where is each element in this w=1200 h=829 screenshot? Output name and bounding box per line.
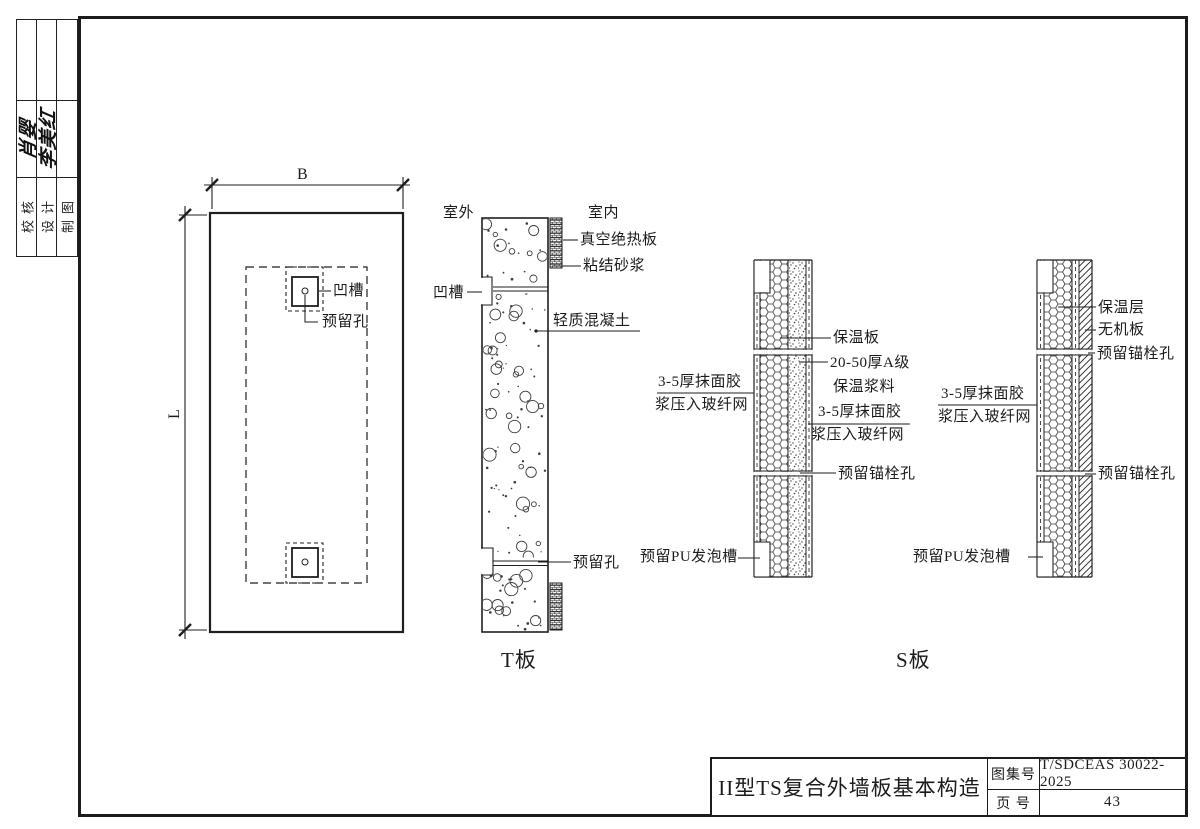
outdoor-label: 室外 <box>443 205 474 222</box>
atlas-no-label: 图集号 <box>988 759 1039 790</box>
insulation-slurry-label-line1: 20-50厚A级 <box>830 355 910 372</box>
right-render-label-line1: 3-5厚抹面胶 <box>941 386 1025 403</box>
left-pu-groove-label: 预留PU发泡槽 <box>640 549 738 566</box>
dim-width-label: B <box>297 166 308 184</box>
right-anchor-hole-top-label: 预留锚栓孔 <box>1097 346 1175 363</box>
vacuum-insulation-panel-label: 真空绝热板 <box>580 232 658 249</box>
s-panel-caption: S板 <box>896 644 931 674</box>
drawing-sheet: 肖婴 李美红 校核 设计 制图 <box>0 0 1200 829</box>
left-anchor-hole-label: 预留锚栓孔 <box>838 466 916 483</box>
t-panel-caption: T板 <box>501 644 537 674</box>
sheet-title: II型TS复合外墙板基本构造 <box>712 759 987 815</box>
outer-render-label-line1: 3-5厚抹面胶 <box>658 374 742 391</box>
right-render-label-line2: 浆压入玻纤网 <box>938 409 1031 426</box>
inner-render-label-line1: 3-5厚抹面胶 <box>818 404 902 421</box>
insulation-board-label: 保温板 <box>833 330 880 347</box>
inner-render-label-line2: 浆压入玻纤网 <box>811 427 904 444</box>
plan-reserved-hole-label: 预留孔 <box>322 314 369 331</box>
page-no-label: 页 号 <box>988 790 1039 815</box>
indoor-label: 室内 <box>588 205 619 222</box>
lightweight-concrete-label: 轻质混凝土 <box>553 313 631 330</box>
page-no-value: 43 <box>1040 790 1185 815</box>
outer-render-label-line2: 浆压入玻纤网 <box>655 397 748 414</box>
t-reserved-hole-label: 预留孔 <box>573 555 620 572</box>
title-block: II型TS复合外墙板基本构造 图集号 页 号 T/SDCEAS 30022-20… <box>710 757 1187 817</box>
plan-groove-label: 凹槽 <box>333 283 364 300</box>
inorganic-board-label: 无机板 <box>1098 322 1145 339</box>
right-anchor-hole-bottom-label: 预留锚栓孔 <box>1098 466 1176 483</box>
insulation-slurry-label-line2: 保温浆料 <box>833 379 895 396</box>
right-pu-groove-label: 预留PU发泡槽 <box>913 549 1011 566</box>
atlas-no-value: T/SDCEAS 30022-2025 <box>1040 759 1185 790</box>
insulation-layer-label: 保温层 <box>1098 300 1145 317</box>
t-groove-label: 凹槽 <box>433 285 464 302</box>
bonding-mortar-label: 粘结砂浆 <box>583 258 645 275</box>
plan-view <box>179 177 410 639</box>
dim-length-label: L <box>166 401 184 427</box>
